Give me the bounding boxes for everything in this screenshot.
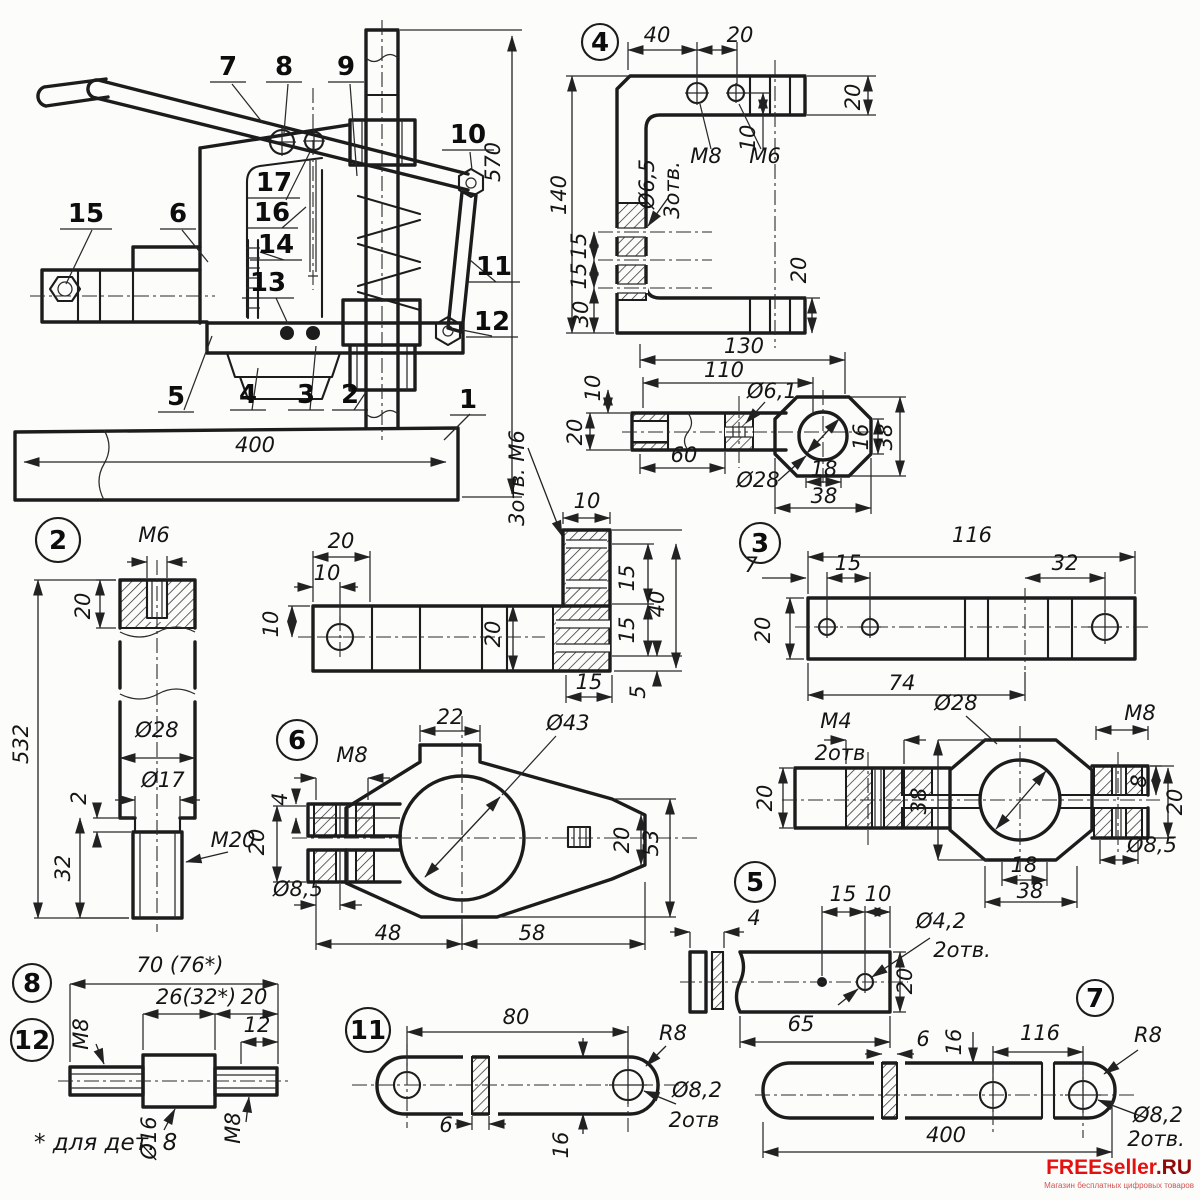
dim-label-lbracket: 10 [259, 611, 283, 638]
dim-label-part4: 20 [841, 84, 865, 111]
dim-label-part2: 20 [71, 593, 95, 620]
dim-label-part7: 16 [942, 1029, 966, 1056]
callout-14: 14 [258, 230, 294, 260]
dim-label-m4clamp: 20 [1163, 789, 1187, 816]
part-number-3: 3 [751, 529, 769, 559]
callout-7: 7 [219, 52, 237, 82]
dim-label-part4: 140 [547, 175, 571, 215]
dim-label-m4clamp: 2отв [815, 741, 866, 765]
part-number-11: 11 [350, 1016, 386, 1046]
dim-label-part2: 532 [9, 724, 33, 764]
dim-label-part7: 2отв. [1127, 1127, 1185, 1151]
dim-label-part5: 15 [830, 882, 857, 906]
dim-label-part11: 2отв [669, 1108, 720, 1132]
callout-10: 10 [450, 120, 486, 150]
dim-label-rod4: 18 [811, 457, 838, 481]
dim-label-part7: 400 [926, 1123, 966, 1147]
part3-bar-drawing [762, 551, 1150, 701]
dim-label-rod4: Ø28 [735, 468, 779, 492]
callout-17: 17 [256, 168, 292, 198]
dim-label-lbracket: 15 [615, 565, 639, 592]
dim-label-part4: 20 [727, 23, 754, 47]
dim-label-part6: 53 [639, 830, 663, 857]
dim-label-rod4: 110 [704, 358, 744, 382]
part-number-5: 5 [746, 868, 764, 898]
dim-label-m4clamp: 38 [907, 788, 931, 815]
dim-label-part2: 2 [67, 791, 91, 804]
watermark[interactable]: FREEseller.RU Магазин бесплатных цифровы… [1044, 1156, 1194, 1190]
dim-label-lbracket: 10 [314, 561, 341, 585]
dim-label-part6: 4 [268, 792, 292, 805]
callout-4: 4 [239, 380, 257, 410]
dim-label-rod4: 38 [811, 484, 838, 508]
part11-link-drawing [352, 1026, 692, 1134]
dim-label-lbracket: 15 [576, 670, 603, 694]
part-number-4: 4 [591, 28, 609, 58]
watermark-tagline: Магазин бесплатных цифровых товаров [1044, 1181, 1194, 1190]
callout-16: 16 [254, 198, 290, 228]
dim-label-part3: 20 [751, 617, 775, 644]
dim-label-part3: 116 [952, 523, 992, 547]
dim-label-rod4: Ø6,1 [746, 379, 797, 403]
dim-label-lbracket: 5 [626, 685, 650, 698]
dim-label-part4: 130 [724, 334, 764, 358]
dim-label-part6: 22 [437, 705, 464, 729]
dim-label-part5: 65 [788, 1012, 815, 1036]
dim-label-m4clamp: 18 [1011, 853, 1038, 877]
dim-label-part3: 32 [1052, 551, 1079, 575]
dim-label-lbracket: 15 [615, 617, 639, 644]
watermark-suffix: .RU [1156, 1156, 1192, 1179]
dim-label-part11: 80 [503, 1005, 530, 1029]
dim-label-part7: R8 [1134, 1023, 1162, 1047]
dim-label-part8: 26(32*) [156, 985, 236, 1009]
callout-3: 3 [297, 380, 315, 410]
dim-label-part6: 20 [245, 829, 269, 856]
callout-2: 2 [341, 380, 359, 410]
dim-label-part4: 30 [569, 301, 593, 328]
dim-label-part4: 15 [567, 263, 591, 290]
dim-label-part6: 20 [610, 827, 634, 854]
dim-label-rod4: 16 [849, 424, 873, 451]
callout-6: 6 [169, 199, 187, 229]
dim-label-part5: 4 [747, 906, 760, 930]
dim-label-m4clamp: М8 [1124, 701, 1155, 725]
dim-label-part8: М8 [221, 1112, 245, 1143]
dim-label-lbracket: 10 [574, 489, 601, 513]
dim-label-part6: 58 [519, 921, 546, 945]
dim-label-rod4: 60 [671, 443, 698, 467]
dim-label-assembly: 400 [235, 433, 275, 457]
dim-label-part8: М8 [69, 1018, 93, 1049]
callout-5: 5 [167, 382, 185, 412]
part-number-6: 6 [288, 726, 306, 756]
dim-label-part6: Ø8,5 [272, 877, 323, 901]
drawing-canvas: 4005703отв. М64020М8М6Ø6,53отв.140151530… [0, 0, 1200, 1200]
dim-label-part8: 12 [244, 1013, 271, 1037]
dim-label-part3: 74 [889, 671, 916, 695]
part-number-8: 8 [23, 969, 41, 999]
dim-label-rod4: 20 [563, 419, 587, 446]
dim-label-m4clamp: 20 [753, 785, 777, 812]
dim-label-m4clamp: 8 [1127, 774, 1151, 787]
part4-bracket-drawing [566, 42, 876, 394]
dim-label-part11: 6 [439, 1113, 452, 1137]
part-number-12: 12 [14, 1026, 50, 1056]
dim-label-part11: Ø8,2 [671, 1078, 722, 1102]
dim-label-lbracket: 20 [328, 529, 355, 553]
dim-label-part6: М8 [336, 743, 367, 767]
dim-label-m4clamp: Ø8,5 [1126, 833, 1177, 857]
callout-1: 1 [459, 385, 477, 415]
dim-label-part8: 20 [241, 985, 268, 1009]
dim-label-part8: * для дет. 8 [34, 1130, 177, 1156]
dim-label-lbracket: 20 [481, 621, 505, 648]
technical-drawing-svg: 4005703отв. М64020М8М6Ø6,53отв.140151530… [0, 0, 1200, 1200]
part-number-2: 2 [49, 526, 67, 556]
dim-label-part5: 10 [865, 882, 892, 906]
dim-label-part7: Ø8,2 [1132, 1103, 1183, 1127]
callout-15: 15 [68, 199, 104, 229]
callout-9: 9 [337, 52, 355, 82]
dim-label-part5: Ø4,2 [915, 909, 966, 933]
dim-label-part4: 3отв. [660, 161, 684, 219]
dim-label-part4: Ø6,5 [635, 159, 659, 210]
dim-label-part11: 16 [549, 1132, 573, 1159]
dim-label-part2: Ø17 [140, 768, 185, 792]
dim-label-part7: 116 [1020, 1021, 1060, 1045]
dim-label-part2: Ø28 [134, 718, 178, 742]
dim-label-assembly: 3отв. М6 [505, 430, 529, 526]
callout-13: 13 [250, 268, 286, 298]
dim-label-part4: 10 [736, 125, 760, 152]
dim-label-part5: 20 [893, 968, 917, 995]
dim-label-part6: Ø43 [545, 711, 589, 735]
dim-label-part8: 70 (76*) [136, 953, 223, 977]
dim-label-m4clamp: 38 [1017, 879, 1044, 903]
dim-label-part4: 20 [787, 257, 811, 284]
callout-8: 8 [275, 52, 293, 82]
watermark-brand: FREEseller [1046, 1156, 1156, 1179]
dim-label-part2: М6 [138, 523, 169, 547]
dim-label-part3: 15 [835, 551, 862, 575]
dim-label-part4: М8 [690, 144, 721, 168]
dim-label-lbracket: 40 [645, 591, 669, 618]
dim-label-part4: 40 [644, 23, 671, 47]
dim-label-rod4: 10 [581, 375, 605, 402]
callout-11: 11 [476, 252, 512, 282]
dim-label-part2: 32 [51, 855, 75, 882]
dim-label-m4clamp: Ø28 [933, 691, 977, 715]
dim-label-part4: 15 [567, 233, 591, 260]
part-number-7: 7 [1086, 984, 1104, 1014]
dim-label-part6: 48 [375, 921, 402, 945]
dim-label-rod4: 38 [873, 424, 897, 451]
dim-label-m4clamp: М4 [820, 709, 851, 733]
callout-12: 12 [474, 307, 510, 337]
dim-label-part5: 2отв. [933, 938, 991, 962]
dim-label-part7: 6 [916, 1027, 929, 1051]
dim-label-part11: R8 [659, 1021, 687, 1045]
